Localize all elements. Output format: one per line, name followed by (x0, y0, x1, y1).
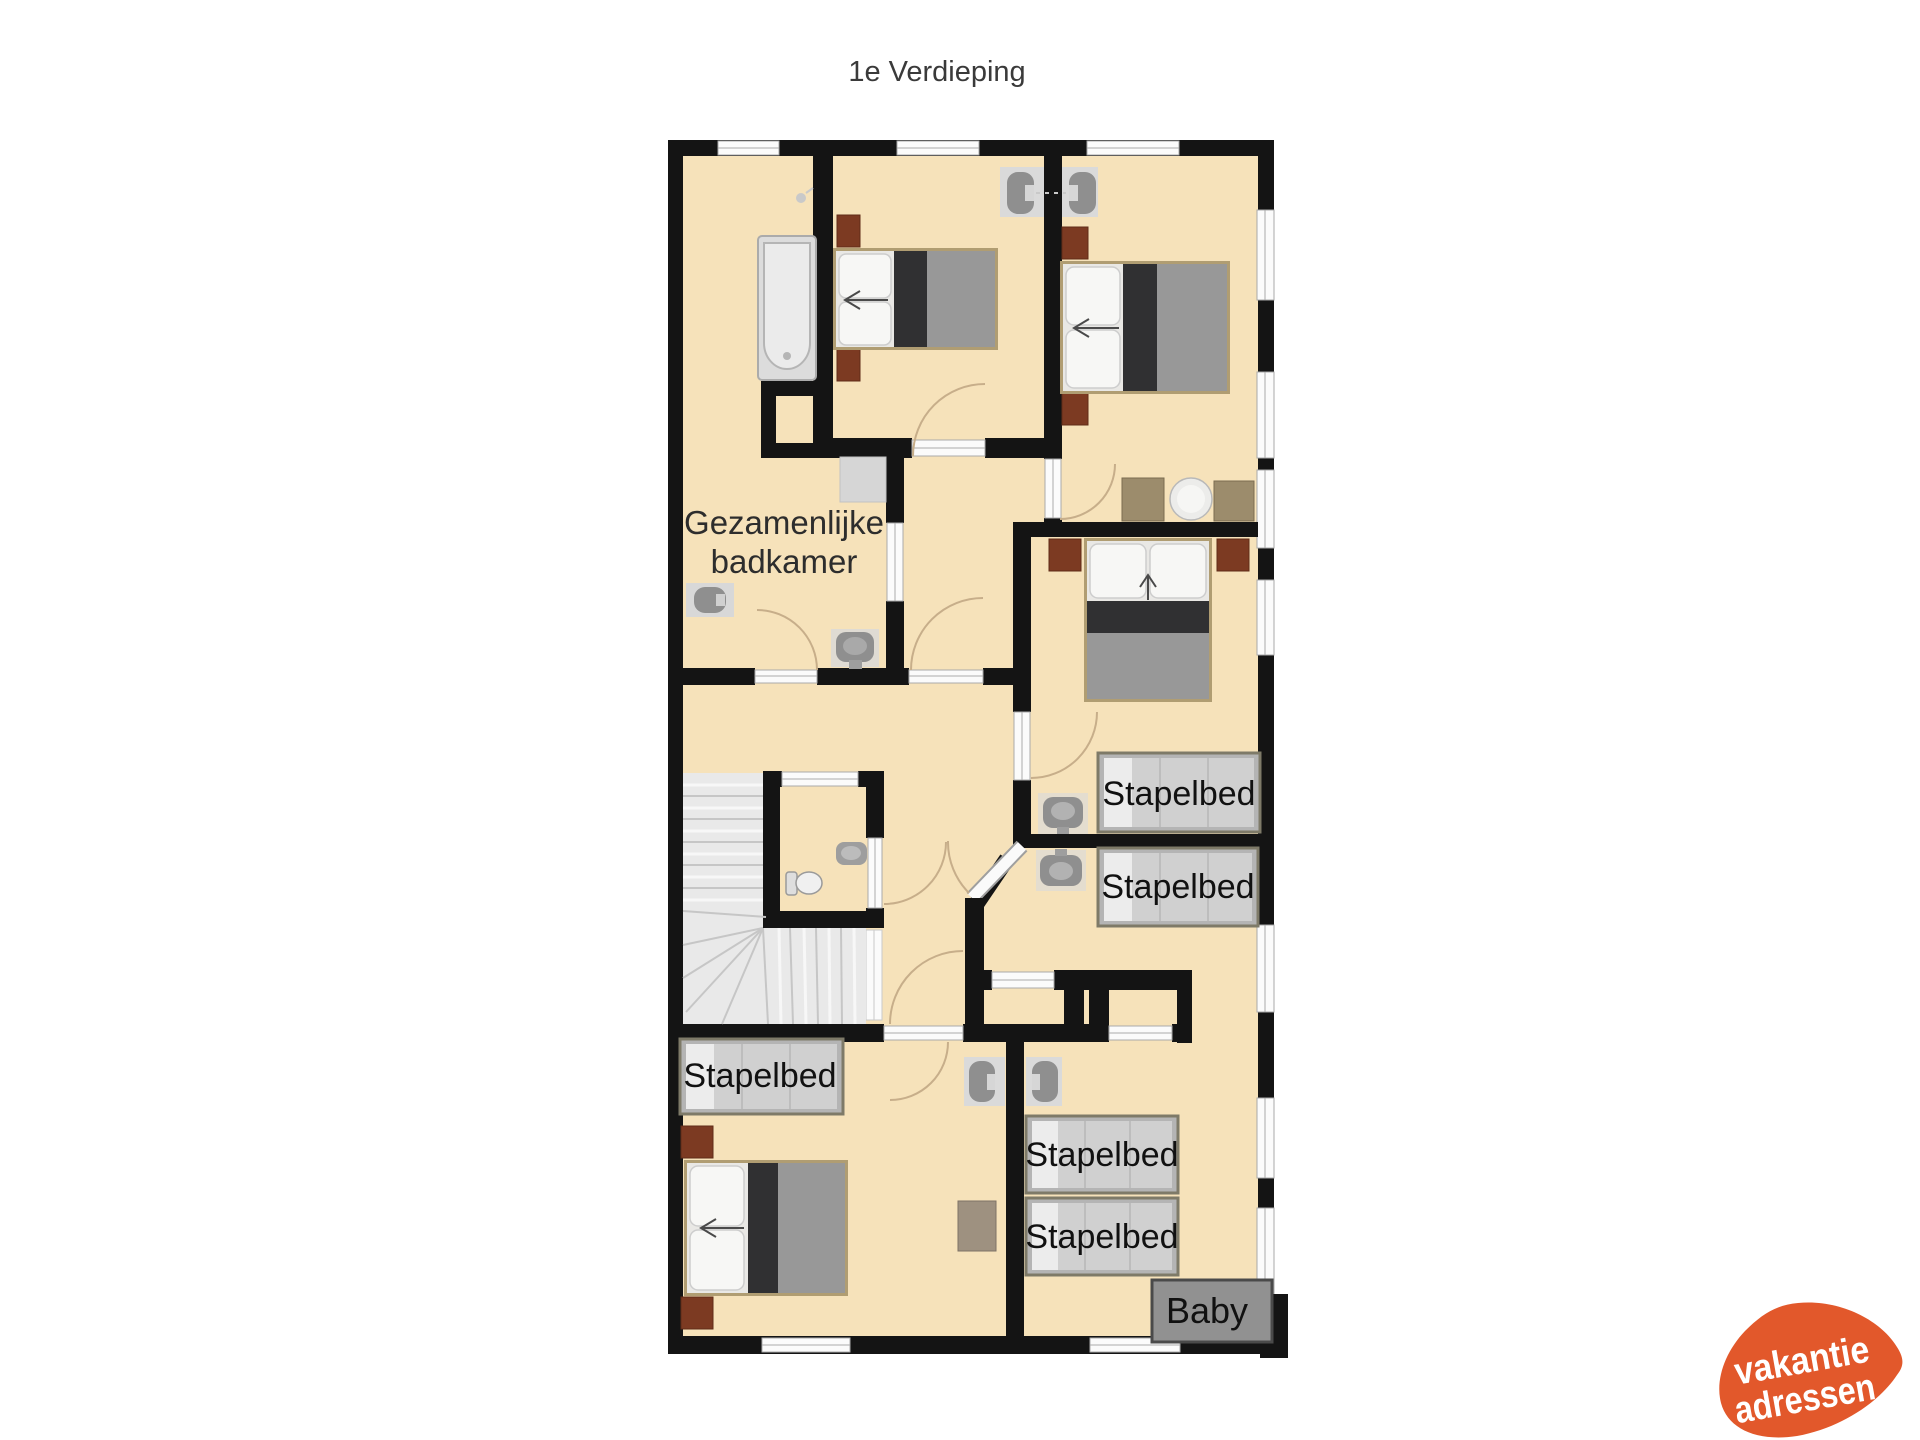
svg-text:Stapelbed: Stapelbed (1101, 868, 1254, 906)
svg-text:Gezamenlijke: Gezamenlijke (684, 504, 884, 541)
svg-text:Stapelbed: Stapelbed (683, 1057, 836, 1095)
svg-text:Stapelbed: Stapelbed (1102, 775, 1255, 813)
svg-text:badkamer: badkamer (711, 543, 858, 580)
svg-text:Stapelbed: Stapelbed (1025, 1218, 1178, 1256)
svg-text:Stapelbed: Stapelbed (1025, 1136, 1178, 1174)
svg-text:Baby: Baby (1166, 1290, 1248, 1331)
svg-text:1e Verdieping: 1e Verdieping (848, 56, 1025, 88)
